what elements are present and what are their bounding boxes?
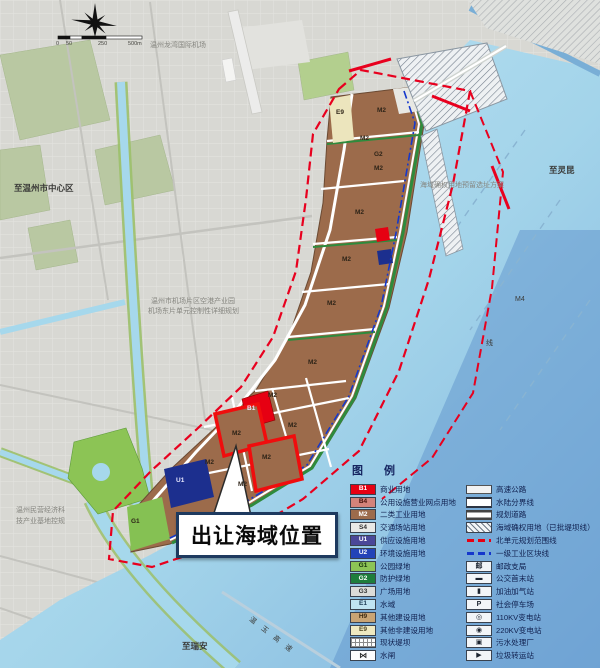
legend-swatch [466, 539, 492, 542]
legend-label: 水域 [380, 599, 395, 610]
legend-item: G1公园绿地 [344, 560, 460, 573]
legend-label: 一级工业区块线 [496, 548, 549, 559]
legend-item: ▣污水处理厂 [460, 637, 600, 650]
legend-label: 规划道路 [496, 509, 526, 520]
legend-item: P社会停车场 [460, 598, 600, 611]
legend-label: 二类工业用地 [380, 509, 426, 520]
legend-swatch: S4 [350, 522, 376, 533]
legend-item: G3广场用地 [344, 585, 460, 598]
legend-swatch [466, 522, 492, 533]
legend-swatch [466, 497, 492, 508]
legend-label: 220KV变电站 [496, 625, 542, 636]
legend-swatch: ▬ [466, 573, 492, 584]
legend-swatch [466, 485, 492, 494]
legend-label: 水闸 [380, 650, 395, 661]
legend-label: 环境设施用地 [380, 548, 426, 559]
legend-swatch: H9 [350, 612, 376, 623]
legend-swatch: 邮 [466, 561, 492, 572]
legend-label: 加油加气站 [496, 586, 534, 597]
legend-swatch: ▶ [466, 650, 492, 661]
legend-swatch: G1 [350, 561, 376, 572]
legend-label: 广场用地 [380, 586, 410, 597]
legend-item: ⋈水闸 [344, 649, 460, 662]
legend-label: 防护绿地 [380, 573, 410, 584]
legend-item: U2环境设施用地 [344, 547, 460, 560]
legend-swatch: P [466, 599, 492, 610]
legend-item: ▬公交首末站 [460, 573, 600, 586]
legend-label: 交通场站用地 [380, 522, 426, 533]
legend-label: 污水处理厂 [496, 637, 534, 648]
legend-item: ▶垃圾转运站 [460, 649, 600, 662]
legend-swatch: E9 [350, 625, 376, 636]
legend-swatch: ◎ [466, 612, 492, 623]
legend-item: M2二类工业用地 [344, 509, 460, 522]
legend-item: B1商业用地 [344, 483, 460, 496]
legend-label: 公用设施营业网点用地 [380, 497, 456, 508]
legend-item: ▮加油加气站 [460, 585, 600, 598]
parcel-e9 [329, 95, 354, 143]
legend-swatch: M2 [350, 509, 376, 520]
legend-item: 海域确权用地（已批堤坝线） [460, 521, 600, 534]
legend-label: 其他非建设用地 [380, 625, 433, 636]
scale-bar [58, 36, 142, 39]
legend-label: 垃圾转运站 [496, 650, 534, 661]
legend-label: 公园绿地 [380, 561, 410, 572]
legend-item: 邮邮政支局 [460, 560, 600, 573]
legend-item: 北单元规划范围线 [460, 534, 600, 547]
legend-item: ◎110KV变电站 [460, 611, 600, 624]
callout-text: 出让海域位置 [191, 520, 323, 550]
legend-right-column: 高速公路水陆分界线规划道路海域确权用地（已批堤坝线）北单元规划范围线一级工业区块… [460, 483, 600, 662]
legend-item: H9其他建设用地 [344, 611, 460, 624]
legend-item: 水陆分界线 [460, 496, 600, 509]
legend-label: 现状堤坝 [380, 637, 410, 648]
legend-label: 110KV变电站 [496, 612, 541, 623]
legend-title: 图 例 [352, 462, 600, 478]
legend-item: U1供应设施用地 [344, 534, 460, 547]
legend-swatch: U1 [350, 535, 376, 546]
parcel-b1-small [375, 227, 390, 242]
legend-label: 高速公路 [496, 484, 526, 495]
legend-item: E9其他非建设用地 [344, 624, 460, 637]
legend-item: G2防护绿地 [344, 573, 460, 586]
legend-swatch: B1 [350, 484, 376, 495]
legend-swatch: E1 [350, 599, 376, 610]
legend-label: 社会停车场 [496, 599, 534, 610]
legend-item: S4交通场站用地 [344, 521, 460, 534]
legend-swatch [466, 510, 492, 520]
legend-label: 供应设施用地 [380, 535, 426, 546]
legend-item: 现状堤坝 [344, 637, 460, 650]
callout-sale-area: 出让海域位置 [176, 512, 338, 558]
legend-item: 一级工业区块线 [460, 547, 600, 560]
legend-item: ◉220KV变电站 [460, 624, 600, 637]
legend-swatch: U2 [350, 548, 376, 559]
planning-map-page: 温州龙湾国际机场至灵昆至温州市中心区温州市机场片区空港产业园机场东片单元控制性详… [0, 0, 600, 668]
legend-swatch [350, 637, 376, 648]
legend-item: E1水域 [344, 598, 460, 611]
legend-item: 规划道路 [460, 509, 600, 522]
legend-swatch: ▮ [466, 586, 492, 597]
legend-label: 北单元规划范围线 [496, 535, 557, 546]
legend-swatch [466, 552, 492, 555]
legend-swatch: G2 [350, 573, 376, 584]
legend-label: 商业用地 [380, 484, 410, 495]
legend-label: 公交首末站 [496, 573, 534, 584]
legend-swatch: ▣ [466, 637, 492, 648]
legend-left-column: B1商业用地B4公用设施营业网点用地M2二类工业用地S4交通场站用地U1供应设施… [344, 483, 460, 662]
legend-label: 海域确权用地（已批堤坝线） [496, 522, 595, 533]
legend-item: 高速公路 [460, 483, 600, 496]
legend-item: B4公用设施营业网点用地 [344, 496, 460, 509]
legend-swatch: G3 [350, 586, 376, 597]
legend-label: 其他建设用地 [380, 612, 426, 623]
legend: 图 例 B1商业用地B4公用设施营业网点用地M2二类工业用地S4交通场站用地U1… [344, 458, 600, 662]
legend-swatch: ⋈ [350, 650, 376, 661]
legend-label: 水陆分界线 [496, 497, 534, 508]
parcel-u-small [377, 249, 393, 265]
legend-swatch: ◉ [466, 625, 492, 636]
legend-label: 邮政支局 [496, 561, 526, 572]
legend-swatch: B4 [350, 497, 376, 508]
